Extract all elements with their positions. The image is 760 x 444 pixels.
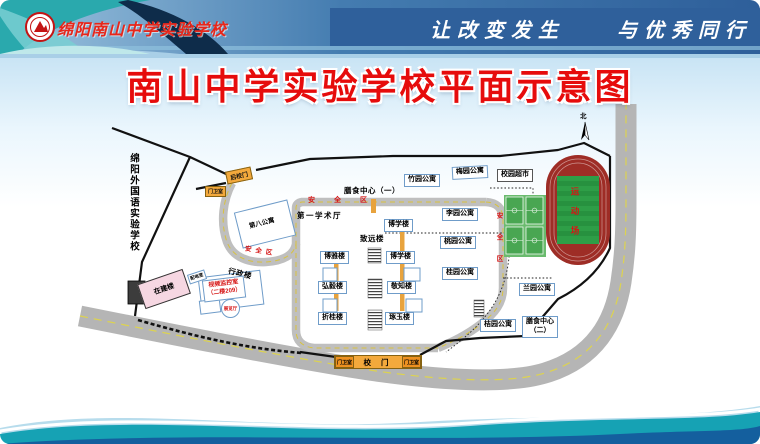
exhibition-hall-label: 展览厅 <box>224 306 238 312</box>
dining-center-2-line2: （二） <box>526 327 554 336</box>
sports-field-label: 运动场 <box>569 187 581 246</box>
hongyi-building-label: 弘毅楼 <box>318 281 347 294</box>
campus-map-page: 绵阳南山中学实验学校 让改变发生 与优秀同行 南山中学实验学校平面示意图 <box>0 0 760 444</box>
boxue-building-top-label: 博学楼 <box>384 219 413 232</box>
plum-garden-apartment-label: 梅园公寓 <box>452 165 489 180</box>
campus-supermarket-label: 校园超市 <box>497 169 533 182</box>
footer-wave-graphic <box>0 388 760 444</box>
page-title: 南山中学实验学校平面示意图 <box>0 58 760 110</box>
back-gate-guard-room-label: 门卫室 <box>205 186 226 197</box>
safety-zone-label-top: 安全区 <box>308 195 386 205</box>
header-slogan: 让改变发生 与优秀同行 <box>430 14 752 43</box>
jingzhi-building-label: 敬知楼 <box>387 281 416 294</box>
school-name: 绵阳南山中学实验学校 <box>57 16 227 40</box>
slogan-right: 与优秀同行 <box>617 14 752 43</box>
safety-zone-label-right: 安全区 <box>493 212 503 277</box>
zhiyuan-building-label: 致远楼 <box>360 233 384 244</box>
orchid-garden-apartment-label: 兰园公寓 <box>519 283 555 296</box>
dining-center-1-label: 膳食中心（一） <box>344 185 400 196</box>
main-gate-bar: 门卫室 校 门 门卫室 <box>334 355 422 369</box>
zhuoyu-building-label: 琢玉楼 <box>385 312 414 325</box>
main-gate-guard-right-label: 门卫室 <box>402 356 421 368</box>
north-label: 北 <box>580 110 587 120</box>
peach-garden-apartment-label: 桃园公寓 <box>440 236 476 249</box>
boxue-building-label: 博学楼 <box>386 251 415 264</box>
osmanthus-garden-apartment-label: 桂园公寓 <box>442 267 478 280</box>
dining-center-2-label: 膳食中心 （二） <box>522 316 558 338</box>
neighbor-school-label: 绵阳外国语实验学校 <box>126 153 140 252</box>
main-gate-label: 校 门 <box>354 356 402 368</box>
li-garden-apartment-label: 李园公寓 <box>442 208 478 221</box>
first-academic-hall-label: 第一学术厅 <box>297 210 342 221</box>
boya-building-label: 博雅楼 <box>320 251 349 264</box>
main-gate-guard-left-label: 门卫室 <box>335 356 354 368</box>
bamboo-garden-apartment-label: 竹园公寓 <box>404 174 440 187</box>
zhegui-building-label: 折桂楼 <box>318 312 347 325</box>
exhibition-hall-circle: 展览厅 <box>221 299 240 318</box>
orange-garden-apartment-label: 桔园公寓 <box>480 319 516 332</box>
dining-center-2-line1: 膳食中心 <box>526 318 554 327</box>
slogan-left: 让改变发生 <box>430 14 565 43</box>
